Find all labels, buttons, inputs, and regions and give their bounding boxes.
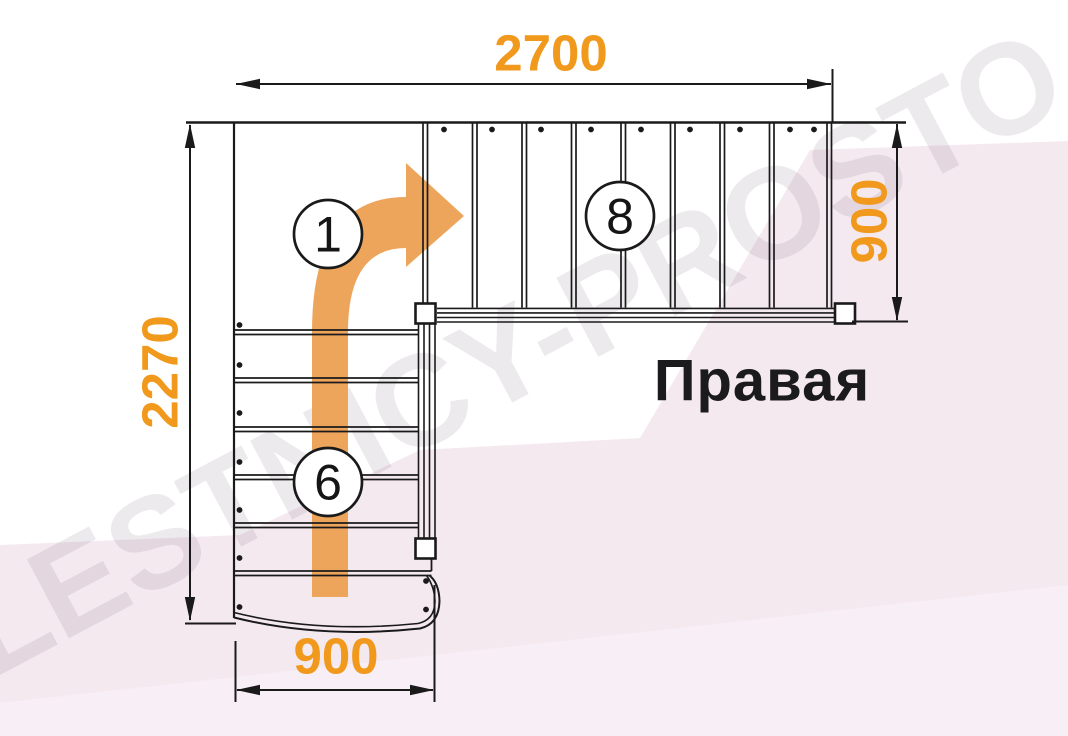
upper-stringer-band: [437, 308, 835, 322]
marker-start-label: 1: [314, 207, 342, 263]
staircase-plan-drawing: LESTNICY-PROSTO.RU: [0, 0, 1068, 736]
lower-stringer-band: [419, 325, 436, 539]
dimension-top: 2700: [494, 24, 607, 83]
plan-title: Правая: [654, 348, 870, 415]
dimension-right: 900: [840, 178, 899, 263]
dimension-bottom: 900: [293, 627, 378, 686]
newel-posts: [416, 304, 856, 559]
dimension-left: 2270: [131, 315, 190, 428]
marker-lower-label: 6: [314, 455, 342, 511]
corner-post: [416, 304, 436, 324]
marker-upper-label: 8: [606, 189, 634, 245]
bottom-post: [416, 539, 436, 559]
